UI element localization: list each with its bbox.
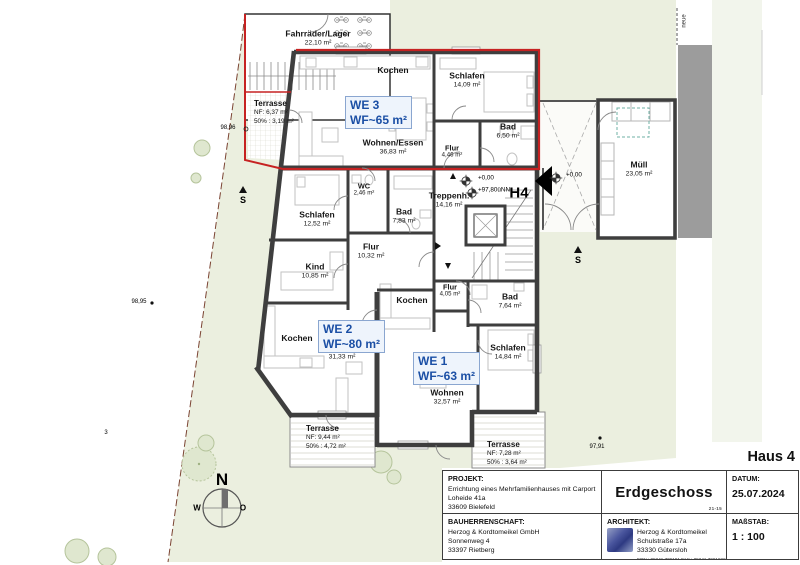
- compass-o: O: [240, 504, 246, 513]
- datum-value: 25.07.2024: [732, 488, 793, 500]
- s-marker-east: S: [575, 255, 581, 265]
- level-text-zero-2: +0,00: [566, 172, 582, 179]
- title-block: PROJEKT: Errichtung eines Mehrfamilienha…: [442, 470, 799, 560]
- room-label-wohnen-essen: Wohnen/Essen36,83 m²: [363, 138, 424, 155]
- terrace-label-we1: TerrasseNF: 7,28 m²50% : 3,64 m²: [487, 440, 527, 467]
- unit-label-we1: WE 1WF~63 m²: [413, 352, 480, 385]
- boundary-note-neue: neue: [682, 14, 688, 27]
- compass-n: N: [216, 470, 228, 490]
- room-label-schlafen-we3: Schlafen14,09 m²: [449, 71, 484, 88]
- sheet-haus-label: Haus 4: [680, 449, 795, 465]
- terrace-label-we2: TerrasseNF: 9,44 m²50% : 4,72 m²: [306, 424, 346, 451]
- titleblock-bauherr: BAUHERRENSCHAFT: Herzog & Kordtomeikel G…: [443, 513, 601, 559]
- room-label-schlafen-we1: Schlafen14,84 m²: [490, 343, 525, 360]
- room-label-kochen-we1: Kochen: [396, 296, 427, 306]
- titleblock-architekt: ARCHITEKT: Herzog & Kordtomeikel Schulst…: [601, 513, 726, 559]
- room-label-bad-764: Bad7,64 m²: [498, 292, 521, 309]
- titleblock-datum: DATUM: 25.07.2024: [726, 471, 798, 513]
- architect-logo-icon: [607, 528, 633, 552]
- architect-phone: FON.: 05241 709191 FAX.: 05241 7091929: [637, 557, 726, 559]
- survey-point-9895: 98,95: [131, 299, 146, 305]
- room-label-treppenhaus: Treppenh.14,16 m²: [429, 191, 470, 208]
- room-label-bad-we3: Bad6,50 m²: [496, 122, 519, 139]
- compass-icon: [203, 489, 241, 527]
- elevator-icon: [466, 206, 505, 245]
- s-marker-west: S: [240, 195, 246, 205]
- level-text-zero: +0,00: [478, 175, 494, 182]
- room-label-schlafen-1252: Schlafen12,52 m²: [299, 210, 334, 227]
- compass-w: W: [193, 504, 201, 513]
- room-label-wc: WC2,46 m²: [354, 182, 375, 197]
- survey-point-3: 3: [104, 430, 107, 436]
- titleblock-projekt: PROJEKT: Errichtung eines Mehrfamilienha…: [443, 471, 601, 513]
- room-label-flur-1032: Flur10,32 m²: [358, 242, 385, 259]
- room-label-kochen-we2: Kochen: [281, 334, 312, 344]
- room-label-muell: Müll23,05 m²: [626, 160, 653, 177]
- titleblock-plan-title: Erdgeschoss 21-15: [601, 471, 726, 513]
- survey-point-9896: 98,96: [220, 125, 235, 131]
- unit-label-we3: WE 3WF~65 m²: [345, 96, 412, 129]
- room-label-fahrraeder-lager: Fahrräder/Lager22,10 m²: [285, 29, 350, 46]
- level-text-nn: +97,80üNN: [478, 187, 510, 194]
- plan-note: 21-15: [709, 506, 722, 511]
- massstab-value: 1 : 100: [732, 531, 793, 543]
- terrace-label-we3: TerrasseNF: 6,37 m²50% : 3,19 m²: [254, 99, 294, 126]
- room-label-wohnen-we1: Wohnen32,57 m²: [430, 388, 463, 405]
- house-marker-h4: H4: [509, 185, 528, 202]
- plan-title: Erdgeschoss: [615, 484, 713, 501]
- unit-label-we2: WE 2WF~80 m²: [318, 320, 385, 353]
- floor-plan-sheet: Fahrräder/Lager22,10 m² Kochen Schlafen1…: [0, 0, 800, 565]
- room-label-kind: Kind10,85 m²: [302, 262, 329, 279]
- room-label-flur-405: Flur4,05 m²: [440, 283, 461, 298]
- room-label-flur-we3: Flur4,46 m²: [442, 144, 463, 159]
- room-label-kochen-we3: Kochen: [377, 66, 408, 76]
- survey-point-9791: 97,91: [589, 444, 604, 450]
- room-label-bad-783: Bad7,83 m²: [392, 207, 415, 224]
- titleblock-massstab: MAßSTAB: 1 : 100: [726, 513, 798, 559]
- projekt-label: PROJEKT:: [448, 474, 596, 483]
